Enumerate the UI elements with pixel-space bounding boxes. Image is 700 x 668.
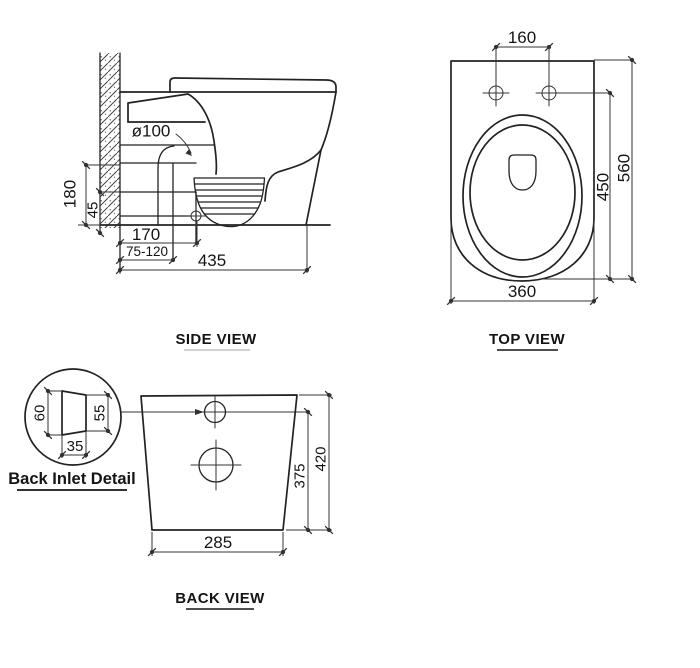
drain-crosshair-icon [186,206,206,227]
side-view-label: SIDE VIEW [175,331,257,348]
side-view-dim-435: 435 [198,251,226,270]
side-view-dim-pipe-diameter: ø100 [132,122,171,141]
seat-lid [170,78,336,92]
top-view-dim-560: 560 [615,154,634,182]
top-view-label: TOP VIEW [489,331,565,348]
side-view-dim-180: 180 [61,180,80,208]
mounting-hole-left-icon [483,47,509,106]
side-view: ø100 180 45 170 75-120 435 SIDE VIEW [61,53,337,350]
inlet-dim-55: 55 [92,405,109,422]
bowl-outer-curve [265,92,336,201]
top-view-dim-160: 160 [508,28,536,47]
flush-outlet-shape [509,155,536,190]
mounting-hole-right-icon [536,47,562,106]
back-view-dim-420: 420 [313,446,330,471]
back-view: 375 420 285 BACK VIEW [141,395,332,609]
technical-drawing-page: ø100 180 45 170 75-120 435 SIDE VIEW [0,0,700,668]
toilet-dimension-drawing: ø100 180 45 170 75-120 435 SIDE VIEW [0,0,700,668]
back-view-dim-375: 375 [292,463,309,488]
wall-hatch [100,53,120,228]
top-view-dim-450: 450 [594,173,613,201]
top-view-dim-360: 360 [508,282,536,301]
seat-inner-oval [470,125,575,260]
side-view-dim-170: 170 [132,225,160,244]
back-inlet-detail-label: Back Inlet Detail [8,470,135,488]
inlet-cross-section [62,391,86,435]
back-view-label: BACK VIEW [175,590,265,607]
back-view-dim-285: 285 [204,533,232,552]
side-view-dim-45: 45 [85,202,102,219]
inlet-dim-60: 60 [32,405,49,422]
back-outline [141,395,297,530]
back-inlet-detail: 60 55 35 Back Inlet Detail [8,369,308,490]
top-view: 160 450 560 360 TOP VIEW [451,28,634,350]
back-outlet-hole-icon [191,440,241,490]
inlet-dim-35: 35 [67,438,84,455]
detail-leader-arrow [195,409,204,415]
side-view-dim-75-120: 75-120 [126,244,168,259]
seat-outer-oval [463,115,582,277]
